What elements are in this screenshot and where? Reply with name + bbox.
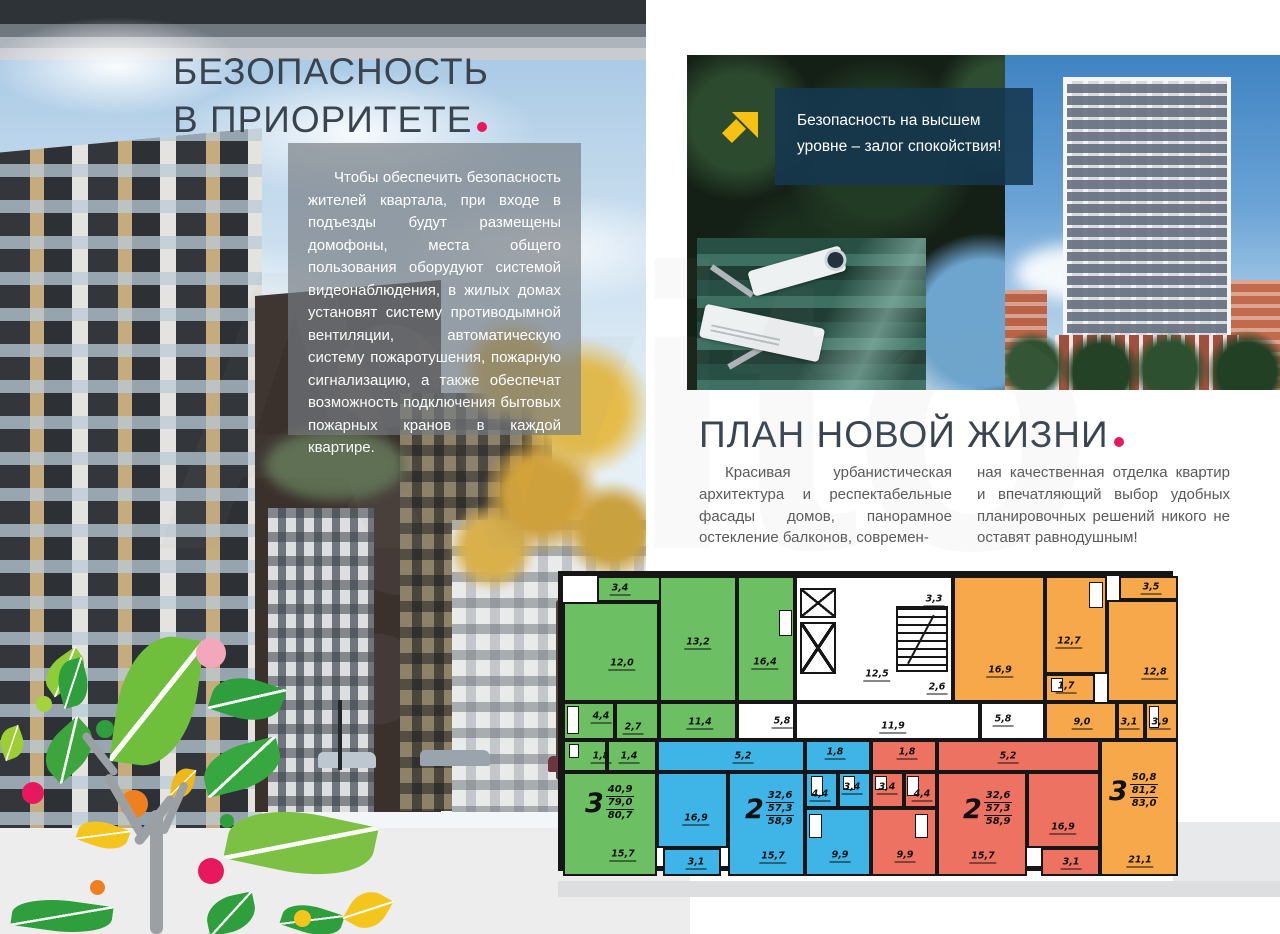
room [1027,772,1100,848]
brochure-page: БЕЗОПАСНОСТЬ В ПРИОРИТЕТЕ Чтобы обеспечи… [0,0,1280,934]
stairs-icon [896,606,948,672]
apartment-type-label: 232,657,358,9 [963,790,1012,828]
fixture-icon [569,744,579,758]
room-area-label: 3,4 [610,583,631,596]
security-body-text: Чтобы обеспечить безопасность жителей кв… [308,167,561,460]
callout-line1: Безопасность на высшем [797,108,1033,134]
room [657,740,805,772]
room-area-label: 3,1 [1061,857,1082,870]
apartment-type-label: 350,881,283,0 [1109,772,1158,810]
room-area-label: 4,4 [810,789,831,802]
callout-line2: уровне – залог спокойствия! [797,134,1033,160]
security-title-line2: В ПРИОРИТЕТЕ [173,99,472,140]
room [737,576,795,702]
room-area-label: 1,4 [619,751,640,764]
room-area-label: 9,9 [830,850,851,863]
room-area-label: 4,4 [912,789,933,802]
room-area-label: 3,1 [1119,717,1140,730]
room-area-label: 5,8 [772,716,793,729]
room-area-label: 12,0 [608,658,635,671]
car [318,752,376,768]
room-area-label: 12,8 [1141,667,1168,680]
room-area-label: 3,3 [924,594,945,607]
room [563,602,659,702]
room [657,772,728,848]
room-area-label: 3,4 [877,782,898,795]
cctv-camera-icon [747,245,846,296]
room-area-label: 16,9 [682,813,709,826]
room-area-label: 15,7 [759,851,786,864]
room-area-label: 15,7 [969,851,996,864]
room-area-label: 9,9 [895,850,916,863]
floorplan: 3,412,013,216,44,42,711,41,81,415,75,216… [558,571,1173,871]
fixture-icon [1089,582,1103,608]
room [937,740,1100,772]
room-area-label: 3,9 [1150,717,1171,730]
traffic-light-pole [338,700,342,770]
room-area-label: 1,8 [591,751,612,764]
room [1107,600,1178,702]
apartment-type-label: 232,657,358,9 [745,790,794,828]
security-callout: Безопасность на высшем уровне – залог сп… [775,88,1033,185]
room-area-label: 1,7 [1056,681,1077,694]
room-area-label: 21,1 [1126,855,1153,868]
plan-ground-strip [558,881,1280,897]
room-area-label: 4,4 [591,711,612,724]
room-area-label: 11,9 [879,721,906,734]
room [953,576,1045,702]
plan-title: ПЛАН НОВОЙ ЖИЗНИ [699,411,1124,459]
room-area-label: 12,5 [863,669,890,682]
room-area-label: 12,7 [1055,636,1082,649]
room-area-label: 2,7 [623,722,644,735]
cctv-camera-icon [699,304,825,363]
room-area-label: 16,9 [986,665,1013,678]
camera-lens [822,246,849,273]
foreground-trees [1005,330,1280,390]
room-area-label: 1,8 [825,747,846,760]
plan-paragraph-right: ная качественная отделка квартир и впеча… [977,462,1230,549]
room-area-label: 9,0 [1072,717,1093,730]
room-area-label: 3,5 [1141,582,1162,595]
building-facade-left [0,128,262,828]
arrow-up-right-icon [718,104,764,150]
period-dot [477,122,487,132]
room-area-label: 11,4 [686,717,713,730]
room-area-label: 5,2 [998,751,1019,764]
cctv-camera-photo [697,238,926,390]
period-dot [1114,437,1124,447]
room-area-label: 16,9 [1049,822,1076,835]
camera-vents [710,324,781,348]
elevator-icon [800,622,836,674]
room-area-label: 1,8 [897,747,918,760]
room-area-label: 5,8 [993,714,1014,727]
fixture-icon [567,706,579,734]
fixture-icon [779,610,792,636]
car [420,750,490,766]
camera-mount-arm [710,264,754,298]
room-area-label: 3,4 [842,782,863,795]
apartment-type-label: 340,979,080,7 [585,784,634,822]
room-area-label: 5,2 [733,751,754,764]
room-area-label: 16,4 [751,657,778,670]
elevator-icon [800,588,836,618]
security-title: БЕЗОПАСНОСТЬ В ПРИОРИТЕТЕ [173,48,489,144]
security-text-panel: Чтобы обеспечить безопасность жителей кв… [288,143,581,435]
fixture-icon [809,814,822,838]
fixture-icon [915,814,928,838]
plan-title-text: ПЛАН НОВОЙ ЖИЗНИ [699,414,1109,455]
room-area-label: 2,6 [927,682,948,695]
room-area-label: 13,2 [684,637,711,650]
plan-side-gray-band [1173,822,1280,881]
plan-paragraph-left: Красивая урбанистическая архитектура и р… [699,462,952,549]
tower-render-photo [1005,55,1280,390]
security-title-line1: БЕЗОПАСНОСТЬ [173,51,489,92]
room-area-label: 3,1 [686,857,707,870]
room-area-label: 15,7 [609,849,636,862]
